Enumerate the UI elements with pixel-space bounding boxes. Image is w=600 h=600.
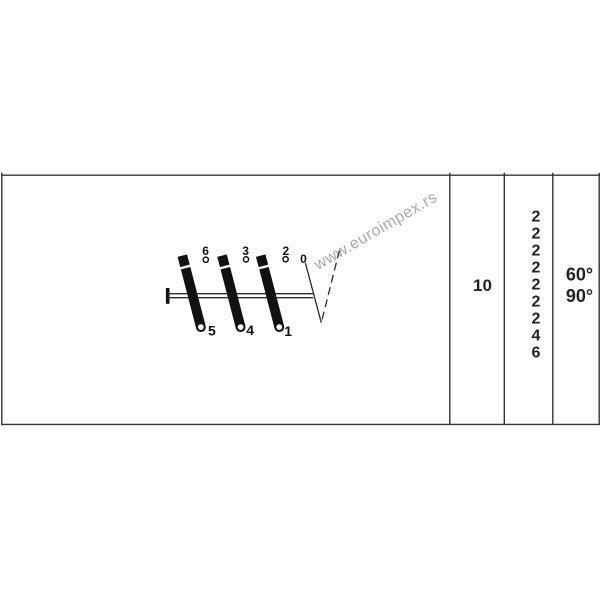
svg-text:2: 2 (532, 209, 541, 226)
svg-text:10: 10 (473, 276, 492, 295)
svg-text:2: 2 (532, 226, 541, 243)
svg-text:6: 6 (532, 345, 541, 362)
svg-text:2: 2 (532, 243, 541, 260)
svg-text:90°: 90° (566, 286, 593, 306)
svg-text:4: 4 (246, 322, 254, 338)
svg-text:1: 1 (284, 323, 292, 339)
svg-text:60°: 60° (566, 265, 593, 285)
svg-text:2: 2 (532, 277, 541, 294)
svg-text:5: 5 (208, 322, 216, 338)
svg-text:3: 3 (242, 244, 249, 258)
svg-text:4: 4 (532, 328, 541, 345)
svg-text:2: 2 (532, 311, 541, 328)
svg-text:6: 6 (202, 244, 209, 258)
svg-text:2: 2 (282, 244, 289, 258)
svg-text:2: 2 (532, 260, 541, 277)
svg-text:2: 2 (532, 294, 541, 311)
